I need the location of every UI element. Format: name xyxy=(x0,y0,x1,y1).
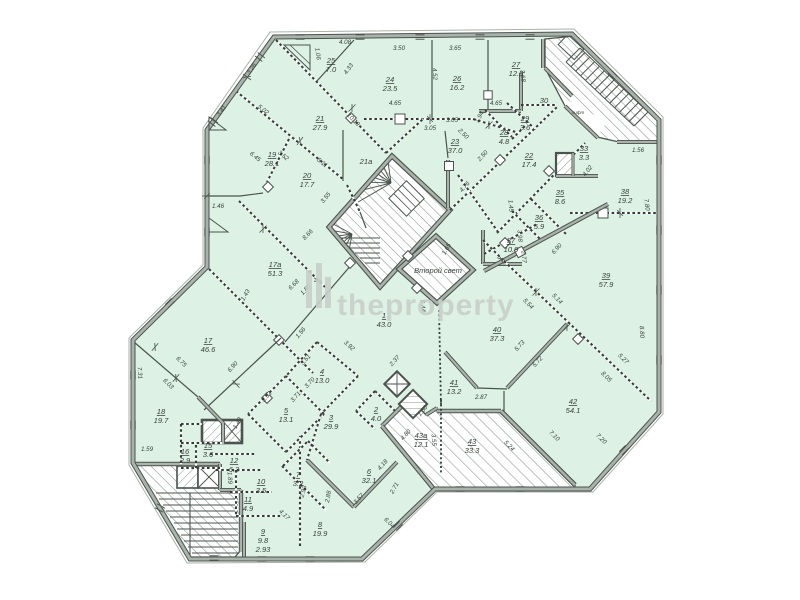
svg-text:3.68: 3.68 xyxy=(518,70,526,83)
svg-text:27: 27 xyxy=(511,60,521,69)
svg-text:27.9: 27.9 xyxy=(312,123,329,132)
svg-text:17.4: 17.4 xyxy=(522,160,537,169)
svg-text:35: 35 xyxy=(556,188,565,197)
svg-text:41: 41 xyxy=(450,378,458,387)
svg-text:19.9: 19.9 xyxy=(313,529,329,538)
svg-text:9.8: 9.8 xyxy=(258,536,269,545)
svg-text:19.7: 19.7 xyxy=(154,416,170,425)
svg-text:10: 10 xyxy=(257,477,266,486)
svg-text:1.46: 1.46 xyxy=(212,203,225,210)
svg-text:4.08: 4.08 xyxy=(339,39,352,46)
svg-text:4.65: 4.65 xyxy=(389,100,402,107)
svg-text:36: 36 xyxy=(535,213,544,222)
svg-text:28: 28 xyxy=(499,128,509,137)
svg-text:20: 20 xyxy=(302,171,312,180)
svg-text:4.52: 4.52 xyxy=(431,68,439,81)
svg-text:7.0: 7.0 xyxy=(326,65,337,74)
svg-text:46.6: 46.6 xyxy=(201,345,217,354)
svg-text:30: 30 xyxy=(540,96,549,105)
svg-text:17: 17 xyxy=(204,336,213,345)
svg-text:17.7: 17.7 xyxy=(300,180,316,189)
svg-text:2.77: 2.77 xyxy=(519,250,527,264)
svg-text:33: 33 xyxy=(580,144,589,153)
svg-text:37.3: 37.3 xyxy=(490,334,506,343)
svg-text:29: 29 xyxy=(520,114,530,123)
svg-text:19.2: 19.2 xyxy=(618,196,634,205)
svg-text:43a: 43a xyxy=(415,431,428,440)
svg-text:19: 19 xyxy=(268,150,277,159)
svg-text:12.1: 12.1 xyxy=(414,440,429,449)
svg-text:3.05: 3.05 xyxy=(424,125,437,132)
svg-text:11: 11 xyxy=(244,495,252,504)
svg-text:8.80: 8.80 xyxy=(638,326,645,339)
svg-text:7.31: 7.31 xyxy=(136,367,144,379)
svg-text:лифт: лифт xyxy=(571,110,585,115)
svg-text:57.9: 57.9 xyxy=(599,280,615,289)
svg-text:21: 21 xyxy=(315,114,324,123)
svg-text:37: 37 xyxy=(507,236,516,245)
svg-text:18: 18 xyxy=(157,407,166,416)
svg-text:1.89: 1.89 xyxy=(226,472,234,485)
svg-text:22: 22 xyxy=(524,151,534,160)
svg-text:29.9: 29.9 xyxy=(323,422,340,431)
svg-text:4.8: 4.8 xyxy=(499,137,510,146)
svg-text:33.3: 33.3 xyxy=(465,446,481,455)
svg-text:43: 43 xyxy=(468,437,477,446)
svg-text:1.45: 1.45 xyxy=(506,200,514,213)
svg-text:10.9: 10.9 xyxy=(504,245,520,254)
svg-text:Второй свет: Второй свет xyxy=(414,266,462,275)
svg-text:12: 12 xyxy=(230,456,239,465)
svg-text:4: 4 xyxy=(320,367,324,376)
svg-text:15: 15 xyxy=(204,441,213,450)
svg-text:13.2: 13.2 xyxy=(447,387,463,396)
svg-text:4.9: 4.9 xyxy=(243,504,254,513)
svg-text:3.3: 3.3 xyxy=(579,153,590,162)
svg-text:51.3: 51.3 xyxy=(268,269,284,278)
svg-text:38: 38 xyxy=(621,187,630,196)
svg-text:16.2: 16.2 xyxy=(450,83,466,92)
svg-text:25: 25 xyxy=(326,56,336,65)
svg-text:5.9: 5.9 xyxy=(534,222,545,231)
svg-text:17a: 17a xyxy=(269,260,282,269)
svg-text:4.0: 4.0 xyxy=(371,414,382,423)
svg-text:39: 39 xyxy=(602,271,611,280)
svg-text:32.1: 32.1 xyxy=(362,476,377,485)
svg-text:42: 42 xyxy=(569,397,578,406)
svg-text:3.65: 3.65 xyxy=(449,45,462,52)
svg-text:3.55: 3.55 xyxy=(429,434,437,447)
svg-text:3.5: 3.5 xyxy=(256,486,267,495)
svg-text:3.6: 3.6 xyxy=(520,123,531,132)
svg-text:2.93: 2.93 xyxy=(255,545,272,554)
svg-text:1.56: 1.56 xyxy=(632,147,645,154)
svg-text:theproperty: theproperty xyxy=(337,289,515,322)
svg-text:24: 24 xyxy=(385,75,394,84)
svg-text:2: 2 xyxy=(373,405,379,414)
svg-text:4.65: 4.65 xyxy=(490,100,503,107)
svg-text:13.0: 13.0 xyxy=(315,376,331,385)
svg-text:21a: 21a xyxy=(359,157,373,166)
svg-text:3.98: 3.98 xyxy=(515,230,523,243)
svg-text:2.87: 2.87 xyxy=(474,394,488,401)
svg-text:3.05: 3.05 xyxy=(446,117,459,124)
svg-text:23: 23 xyxy=(450,137,460,146)
svg-text:26: 26 xyxy=(452,74,462,83)
svg-text:28.1: 28.1 xyxy=(264,159,280,168)
svg-text:37.0: 37.0 xyxy=(448,146,464,155)
svg-text:8.6: 8.6 xyxy=(555,197,566,206)
svg-text:3.50: 3.50 xyxy=(393,45,406,52)
svg-text:1.59: 1.59 xyxy=(141,446,154,453)
svg-text:16: 16 xyxy=(181,447,190,456)
svg-text:54.1: 54.1 xyxy=(566,406,581,415)
svg-text:13.1: 13.1 xyxy=(279,415,294,424)
svg-text:2.9: 2.9 xyxy=(179,456,191,465)
svg-text:40: 40 xyxy=(493,325,502,334)
svg-text:23.5: 23.5 xyxy=(382,84,399,93)
svg-text:3.6: 3.6 xyxy=(203,450,214,459)
